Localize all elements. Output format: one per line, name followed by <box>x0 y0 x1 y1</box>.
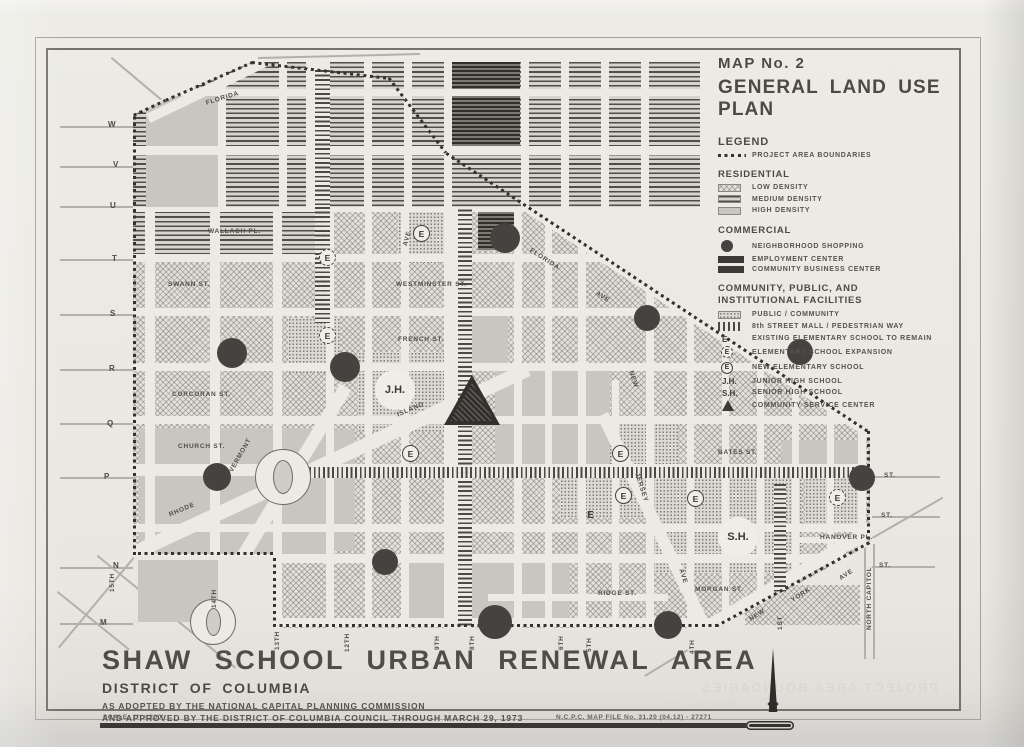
legend-row: MEDIUM DENSITY <box>718 195 968 203</box>
legend-boundary-row: PROJECT AREA BOUNDARIES <box>718 152 968 159</box>
legend-row: J.H.JUNIOR HIGH SCHOOL <box>718 377 968 385</box>
street-label: MORGAN ST. <box>695 586 744 593</box>
shopping-circle-swatch <box>721 240 733 252</box>
street-vertical <box>444 62 452 207</box>
street-letter-label: S <box>110 309 115 318</box>
mall-stripes-swatch <box>718 322 741 331</box>
new-school-symbol: E <box>721 362 733 374</box>
new-elementary-school-symbol: E <box>413 225 430 242</box>
context-street-line <box>60 477 133 479</box>
street-letter-label: Q <box>107 419 113 428</box>
new-elementary-school-symbol: E <box>612 445 629 462</box>
neighborhood-shopping-circle <box>634 305 660 331</box>
legend-row-label: 8th STREET MALL / PEDESTRIAN WAY <box>752 323 904 330</box>
legend-row: COMMUNITY BUSINESS CENTER <box>718 266 968 273</box>
legend-row-label: COMMUNITY BUSINESS CENTER <box>752 266 881 273</box>
street-vertical <box>364 62 372 207</box>
new-elementary-school-symbol: E <box>615 487 632 504</box>
legend-row: 8th STREET MALL / PEDESTRIAN WAY <box>718 322 968 331</box>
street-vertical <box>578 207 586 628</box>
file-number: N.C.P.C. MAP FILE No. 31.20 (04.12) - 27… <box>556 714 712 721</box>
hatched-street-band <box>300 467 862 478</box>
boundary-dots-swatch <box>718 154 746 157</box>
junior-high-symbol: J.H. <box>375 370 415 410</box>
senior-high-symbol: S.H. <box>718 517 758 557</box>
street-letter-label: P <box>104 472 109 481</box>
context-street-line <box>60 259 133 261</box>
street-vertical <box>514 207 522 628</box>
street-label: HANOVER PL. <box>820 534 873 541</box>
street-vertical <box>641 62 649 207</box>
legend-row-label: EMPLOYMENT CENTER <box>752 256 844 263</box>
map-number: MAP No. 2 <box>718 55 968 72</box>
context-street-line <box>60 206 133 208</box>
street-vertical <box>545 207 552 628</box>
street-label: ST. <box>879 562 891 569</box>
street-label: 15TH <box>109 573 116 592</box>
legend-row-label: JUNIOR HIGH SCHOOL <box>752 378 842 385</box>
street-label: WESTMINSTER ST. <box>396 281 467 288</box>
street-letter-label: M <box>100 618 107 627</box>
existing-school-symbol: E <box>722 335 727 343</box>
logan-circle-park <box>273 460 293 494</box>
legend-row-label: SENIOR HIGH SCHOOL <box>752 389 843 396</box>
street-label: BATES ST. <box>718 449 758 456</box>
pedestrian-mall-band <box>774 484 786 592</box>
legend-row-label: COMMUNITY SERVICE CENTER <box>752 402 875 409</box>
legend-row: LOW DENSITY <box>718 184 968 192</box>
legend-section-heading: COMMUNITY, PUBLIC, ANDINSTITUTIONAL FACI… <box>718 283 968 307</box>
logan-circle <box>255 449 311 505</box>
neighborhood-shopping-circle <box>490 223 520 253</box>
thomas-circle-park <box>206 608 221 636</box>
context-street-line <box>57 591 130 650</box>
street-label: FRENCH ST. <box>398 336 444 343</box>
street-label: CHURCH ST. <box>178 443 225 450</box>
legend-heading: LEGEND <box>718 136 968 148</box>
scale-note: SCALE: 1" = 200' <box>103 714 164 721</box>
neighborhood-shopping-circle <box>372 549 398 575</box>
legend-row-label: EXISTING ELEMENTARY SCHOOL TO REMAIN <box>752 335 932 342</box>
legend-row: COMMUNITY SERVICE CENTER <box>718 400 968 411</box>
medium-density-swatch <box>718 195 741 203</box>
context-street-line <box>111 57 162 100</box>
legend-row-label: LOW DENSITY <box>752 184 808 191</box>
low-density-swatch <box>718 184 741 192</box>
street-vertical <box>601 62 609 207</box>
context-street-line <box>874 544 876 659</box>
street-vertical <box>646 207 654 628</box>
base-rule <box>100 723 792 728</box>
elementary-expansion-symbol: E <box>319 327 336 344</box>
school-expansion-symbol: E <box>721 346 733 358</box>
street-label: 1ST <box>777 616 784 630</box>
street-vertical <box>521 62 529 207</box>
legend-row-label: PUBLIC / COMMUNITY <box>752 311 840 318</box>
legend-row: EELEMENTARY SCHOOL EXPANSION <box>718 346 968 358</box>
center-bar-swatch <box>718 266 744 273</box>
project-boundary-segment <box>133 552 273 555</box>
adoption-line-1: AS ADOPTED BY THE NATIONAL CAPITAL PLANN… <box>102 701 757 711</box>
street-vertical <box>404 62 412 207</box>
street-letter-label: R <box>109 364 115 373</box>
context-street-line <box>60 423 133 425</box>
street-label: 14TH <box>211 589 218 608</box>
sheet-subtitle: DISTRICT OF COLUMBIA <box>102 680 757 696</box>
context-street-line <box>60 126 133 128</box>
street-letter-label: U <box>110 201 116 210</box>
pedestrian-mall-band <box>315 70 330 207</box>
legend-row: EEXISTING ELEMENTARY SCHOOL TO REMAIN <box>718 335 968 343</box>
scanned-map-sheet: AREAPROJECT AREA BOUNDARIESMAP No. 2EEEE… <box>0 0 1024 747</box>
street-letter-label: N <box>113 561 119 570</box>
legend-row-label: NEIGHBORHOOD SHOPPING <box>752 243 864 250</box>
neighborhood-shopping-circle <box>203 463 231 491</box>
street-vertical <box>279 62 287 207</box>
legend-row: HIGH DENSITY <box>718 207 968 215</box>
new-elementary-school-symbol: E <box>402 445 419 462</box>
street-label: ST. <box>881 512 893 519</box>
street-label: AVE <box>838 568 855 582</box>
neighborhood-shopping-circle <box>654 611 682 639</box>
title-block: SHAW SCHOOL URBAN RENEWAL AREA DISTRICT … <box>102 645 757 723</box>
context-street-line <box>60 166 133 168</box>
legend-row: PUBLIC / COMMUNITY <box>718 311 968 319</box>
project-boundary-segment <box>273 555 276 627</box>
legend-sections: RESIDENTIALLOW DENSITYMEDIUM DENSITYHIGH… <box>718 169 968 412</box>
legend-section-heading: COMMERCIAL <box>718 225 968 237</box>
service-center-triangle-icon <box>722 400 734 411</box>
high-density-swatch <box>718 207 741 215</box>
legend-row-label: HIGH DENSITY <box>752 207 810 214</box>
legend-row: S.H.SENIOR HIGH SCHOOL <box>718 389 968 397</box>
neighborhood-shopping-circle <box>217 338 247 368</box>
context-street-line <box>60 369 133 371</box>
elementary-expansion-symbol: E <box>319 249 336 266</box>
legend-row: ENEW ELEMENTARY SCHOOL <box>718 362 968 374</box>
street-vertical <box>365 207 372 628</box>
street-label: ST. <box>884 472 896 479</box>
senior-high-symbol: S.H. <box>722 389 738 397</box>
center-bar-swatch <box>718 256 744 263</box>
street-vertical <box>687 207 694 628</box>
graphic-scale-capsule <box>746 721 794 730</box>
elementary-expansion-symbol: E <box>829 489 846 506</box>
street-label: CORCORAN ST. <box>172 391 231 398</box>
street-vertical <box>145 207 155 556</box>
street-label: RIDGE ST. <box>598 590 637 597</box>
street-label: SWANN ST. <box>168 281 210 288</box>
neighborhood-shopping-circle <box>849 465 875 491</box>
street-vertical <box>561 62 569 207</box>
street-label: NORTH CAPITOL <box>866 567 873 630</box>
legend-row: EMPLOYMENT CENTER <box>718 256 968 263</box>
street-letter-label: W <box>108 120 116 129</box>
new-elementary-school-symbol: E <box>687 490 704 507</box>
public-community-swatch <box>718 311 741 319</box>
land-use-block <box>452 62 520 150</box>
legend-panel: MAP No. 2 GENERAL LAND USE PLAN LEGEND P… <box>718 55 968 411</box>
context-street-line <box>258 53 420 58</box>
street-label: WALLACH PL. <box>208 228 261 235</box>
project-boundary-segment <box>133 114 136 555</box>
context-street-line <box>872 476 940 478</box>
map-title: GENERAL LAND USE PLAN <box>718 77 968 121</box>
legend-row-label: NEW ELEMENTARY SCHOOL <box>752 364 864 371</box>
legend-row-label: MEDIUM DENSITY <box>752 196 822 203</box>
sheet-title: SHAW SCHOOL URBAN RENEWAL AREA <box>102 645 757 676</box>
existing-elementary-symbol: E <box>582 507 599 524</box>
boundary-label: PROJECT AREA BOUNDARIES <box>752 152 871 159</box>
neighborhood-shopping-circle <box>330 352 360 382</box>
legend-row-label: ELEMENTARY SCHOOL EXPANSION <box>752 349 893 356</box>
junior-high-symbol: J.H. <box>722 377 737 385</box>
legend-row: NEIGHBORHOOD SHOPPING <box>718 240 968 252</box>
neighborhood-shopping-circle <box>478 605 512 639</box>
street-letter-label: V <box>113 160 118 169</box>
context-street-line <box>60 314 133 316</box>
street-letter-label: T <box>112 254 117 263</box>
legend-section-heading: RESIDENTIAL <box>718 169 968 181</box>
